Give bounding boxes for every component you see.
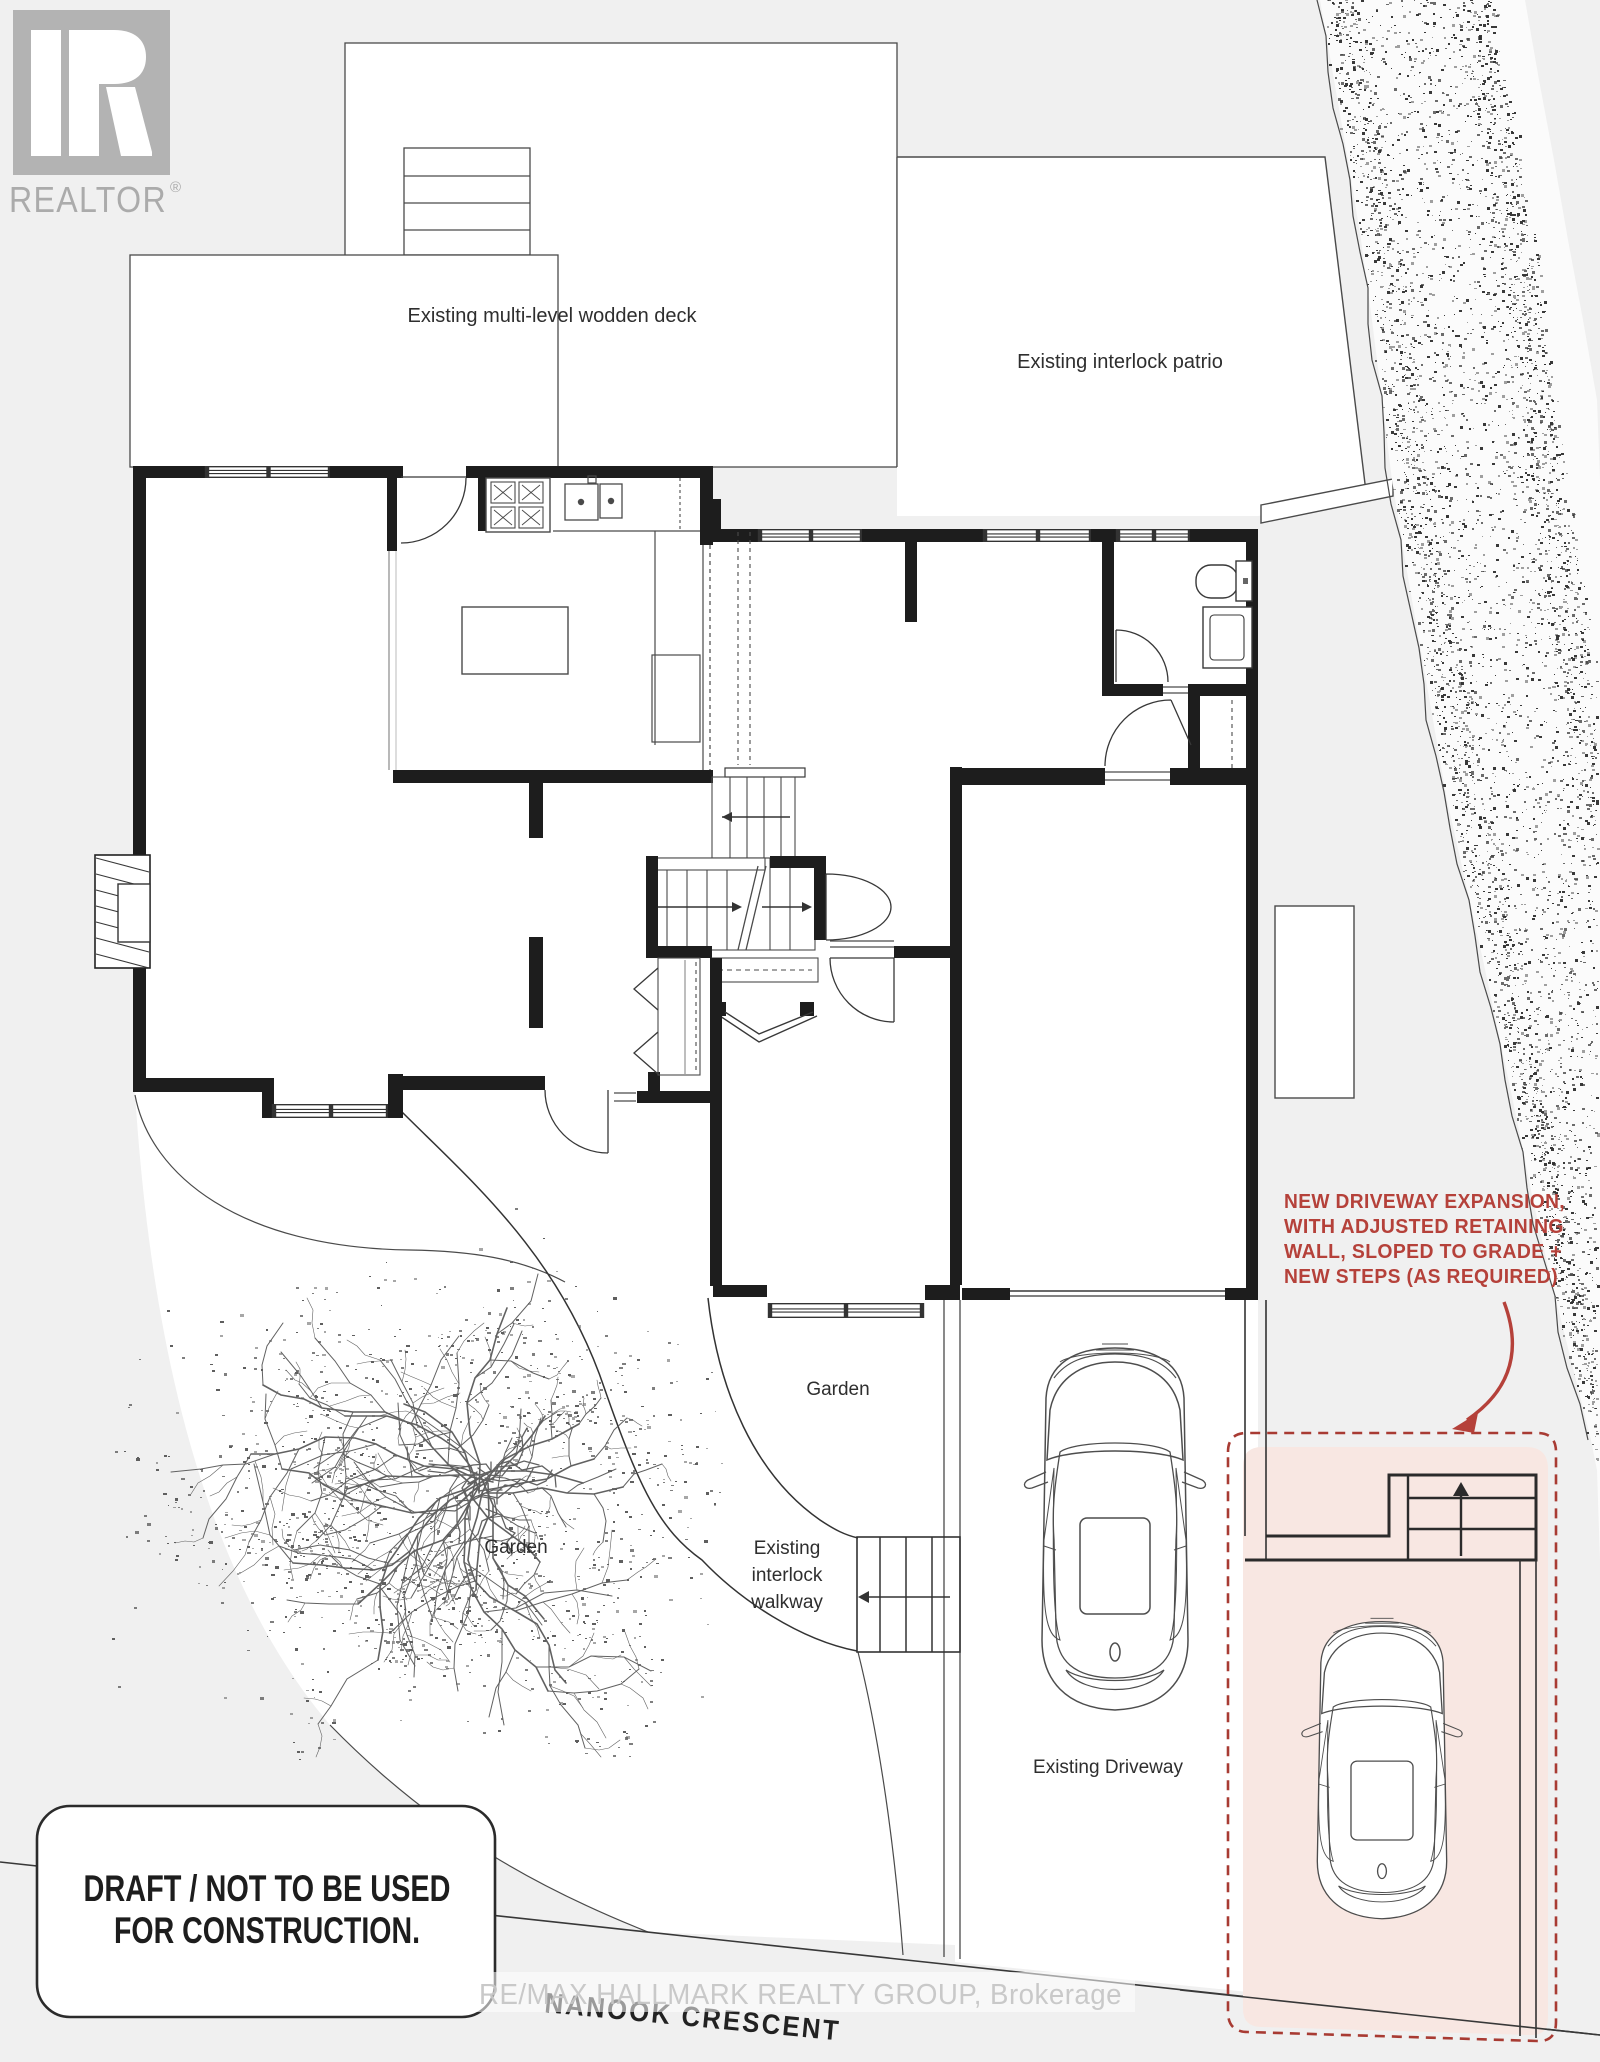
svg-text:Existing multi-level wodden de: Existing multi-level wodden deck [407,305,697,327]
svg-text:walkway: walkway [750,1592,823,1613]
svg-text:WALL, SLOPED TO GRADE +: WALL, SLOPED TO GRADE + [1284,1240,1562,1263]
svg-text:interlock: interlock [752,1565,823,1586]
svg-text:Existing interlock patrio: Existing interlock patrio [1017,351,1223,373]
svg-text:NEW STEPS (AS REQUIRED): NEW STEPS (AS REQUIRED) [1284,1265,1558,1288]
svg-text:Garden: Garden [484,1537,547,1558]
svg-text:Existing: Existing [754,1538,821,1559]
svg-text:WITH ADJUSTED RETAINING: WITH ADJUSTED RETAINING [1284,1215,1564,1238]
svg-text:NEW DRIVEWAY EXPANSION,: NEW DRIVEWAY EXPANSION, [1284,1190,1565,1213]
svg-text:Garden: Garden [806,1379,869,1400]
svg-text:FOR CONSTRUCTION.: FOR CONSTRUCTION. [114,1910,420,1951]
svg-text:REALTOR: REALTOR [9,179,167,220]
svg-text:RE/MAX HALLMARK REALTY GROUP,: RE/MAX HALLMARK REALTY GROUP, Brokerage [479,1979,1122,2011]
svg-text:®: ® [170,179,181,196]
svg-text:Existing Driveway: Existing Driveway [1033,1757,1183,1778]
svg-text:DRAFT / NOT TO BE USED: DRAFT / NOT TO BE USED [84,1868,451,1909]
